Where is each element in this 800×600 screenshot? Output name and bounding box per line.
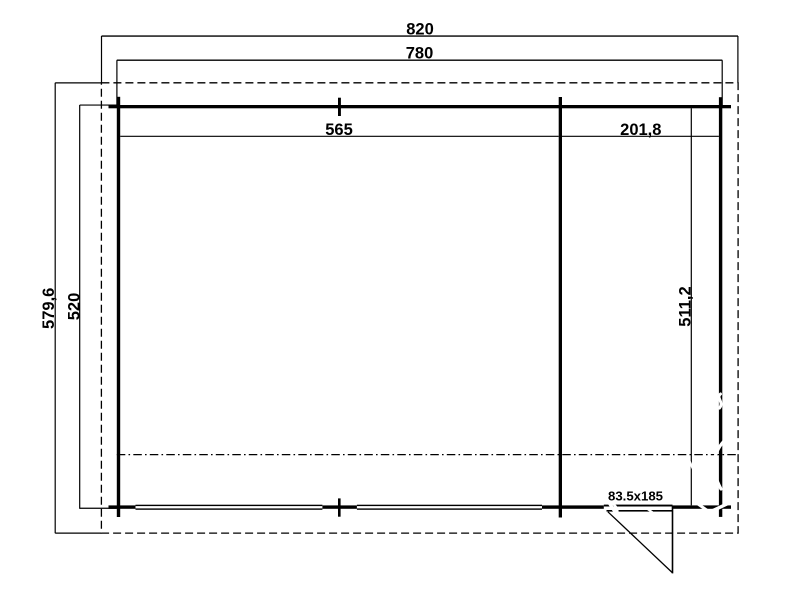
svg-text:820: 820 [406, 21, 434, 39]
svg-text:83.5x185: 83.5x185 [608, 489, 663, 504]
svg-text:579,6: 579,6 [40, 288, 58, 329]
svg-text:565: 565 [325, 121, 353, 139]
svg-text:780: 780 [406, 45, 434, 63]
svg-text:201,8: 201,8 [620, 121, 661, 139]
svg-text:511,2: 511,2 [677, 286, 695, 326]
svg-text:520: 520 [65, 293, 83, 321]
